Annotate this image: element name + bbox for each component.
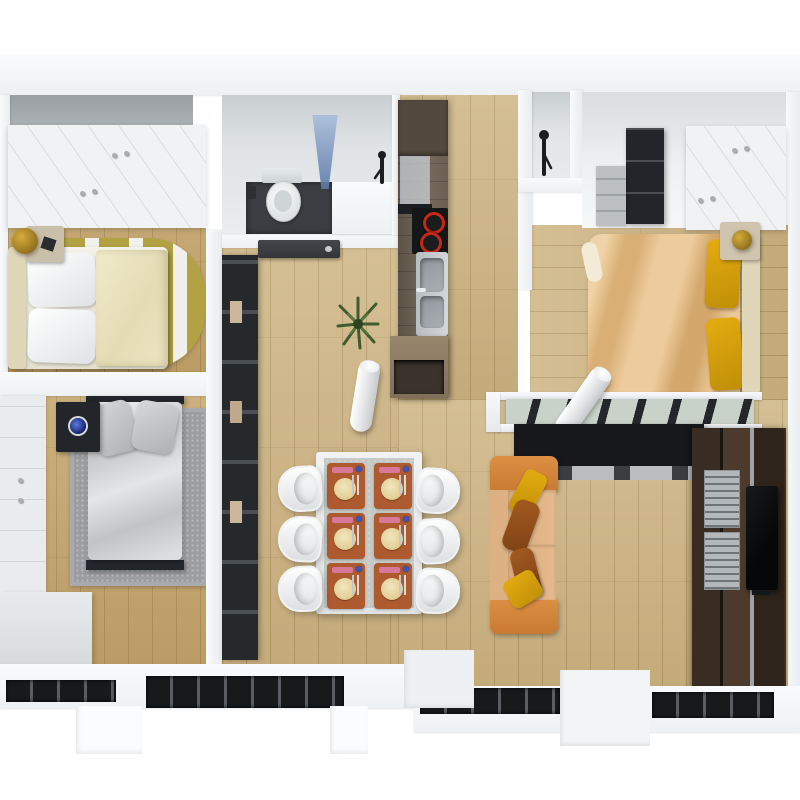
sofa: [490, 456, 558, 634]
bedroom1-bed: [8, 247, 168, 369]
potted-plant: [334, 294, 382, 352]
bedroom3-pillow: [706, 317, 745, 391]
tv-stand: [752, 590, 770, 595]
kitchen-end-cabinet: [390, 336, 448, 398]
silver-rack: [704, 532, 740, 590]
tall-cabinet: [398, 100, 448, 156]
bedroom1-headboard: [8, 247, 26, 369]
bedroom3-dark-wardrobe: [626, 128, 664, 224]
place-setting: [374, 563, 412, 609]
shelf-item: [230, 301, 242, 323]
bedroom1-wardrobe: [8, 125, 206, 228]
dining-chair: [277, 515, 323, 563]
hall-west-wall: [206, 230, 222, 668]
bedroom2-bed: [86, 396, 184, 570]
place-setting: [327, 463, 365, 509]
bedroom2-nightstand: [56, 402, 100, 452]
shower-fixture: [534, 128, 554, 180]
sink-basin: [420, 258, 444, 292]
shelf-item: [230, 401, 242, 423]
bedroom1-lamp: [12, 228, 38, 254]
kitchen-sink: [416, 252, 448, 336]
place-setting: [327, 563, 365, 609]
bed-frame-bottom: [86, 560, 184, 570]
open-shelf: [394, 360, 444, 394]
north-wall-shadow-face: [0, 95, 193, 125]
wall-stub: [560, 670, 650, 746]
bedroom2-pillow: [130, 399, 180, 456]
door-handle: [325, 246, 332, 252]
glass-upstand: [400, 156, 430, 210]
facade-window: [146, 676, 344, 708]
bedroom3-lamp: [732, 230, 752, 250]
burner: [423, 212, 445, 234]
facade-window: [6, 680, 116, 702]
cooktop: [412, 208, 448, 254]
bedroom3-wardrobe: [686, 126, 786, 230]
shelf-item: [230, 501, 242, 523]
burner: [420, 232, 442, 254]
east-wall: [786, 92, 800, 692]
silver-rack: [704, 470, 740, 528]
toilet: [266, 181, 301, 222]
decor-box: [40, 236, 56, 251]
faucet: [416, 288, 426, 292]
shower-half-wall: [332, 182, 400, 234]
hall-shelving-unit: [222, 255, 258, 660]
place-setting: [374, 463, 412, 509]
place-setting: [374, 513, 412, 559]
place-setting: [327, 513, 365, 559]
shower-head: [372, 150, 392, 186]
dining-chair: [277, 565, 323, 613]
bedroom1-pillow: [27, 308, 97, 364]
open-door: [258, 240, 340, 258]
partition-end-post: [486, 392, 500, 432]
bedroom2-wardrobe: [0, 396, 46, 592]
sink-basin: [420, 296, 444, 328]
glass-partition: [506, 399, 754, 425]
facade-window: [652, 692, 774, 718]
bedroom-divider-wall: [0, 372, 206, 396]
tv-screen: [746, 486, 778, 590]
bedroom2-dresser: [0, 592, 92, 668]
wall-stub: [330, 706, 368, 754]
showerroom-east-wall: [570, 90, 582, 182]
north-wall: [0, 55, 800, 95]
floorplan-render: [0, 0, 800, 800]
wall-stub: [76, 706, 142, 754]
toilet-seat: [274, 190, 292, 212]
bedroom3-shelf-cabinet: [596, 166, 626, 226]
bedroom1-duvet: [96, 250, 168, 366]
alarm-clock: [70, 418, 86, 434]
paper-holder: [246, 186, 256, 199]
wall-stub: [404, 650, 474, 708]
